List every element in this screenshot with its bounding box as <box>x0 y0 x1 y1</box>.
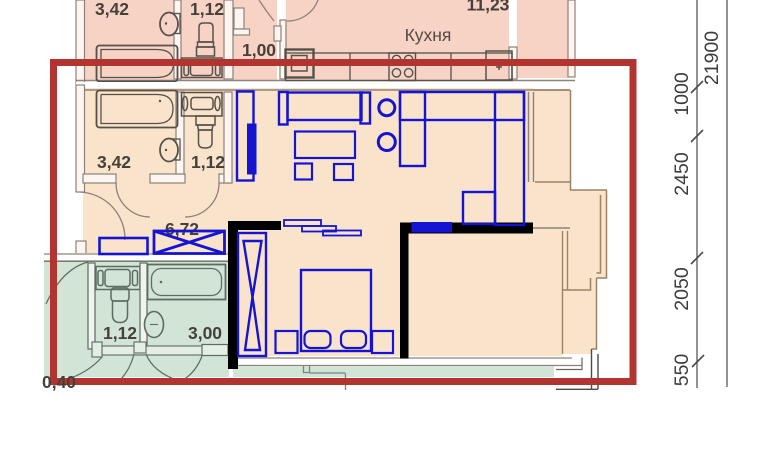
svg-text:1,12: 1,12 <box>191 152 225 172</box>
svg-text:1000: 1000 <box>671 72 693 116</box>
svg-text:0,40: 0,40 <box>42 372 76 392</box>
svg-text:1,12: 1,12 <box>103 323 137 343</box>
svg-text:1,00: 1,00 <box>242 40 276 60</box>
svg-text:Кухня: Кухня <box>405 25 452 45</box>
svg-text:3,42: 3,42 <box>97 152 131 172</box>
svg-text:3,00: 3,00 <box>188 323 222 343</box>
svg-text:1,12: 1,12 <box>190 0 224 19</box>
svg-text:2450: 2450 <box>671 152 693 196</box>
svg-text:3,42: 3,42 <box>95 0 129 19</box>
svg-text:21900: 21900 <box>701 31 723 85</box>
svg-text:2050: 2050 <box>671 267 693 311</box>
svg-text:11,23: 11,23 <box>467 0 510 15</box>
svg-text:550: 550 <box>671 354 693 387</box>
